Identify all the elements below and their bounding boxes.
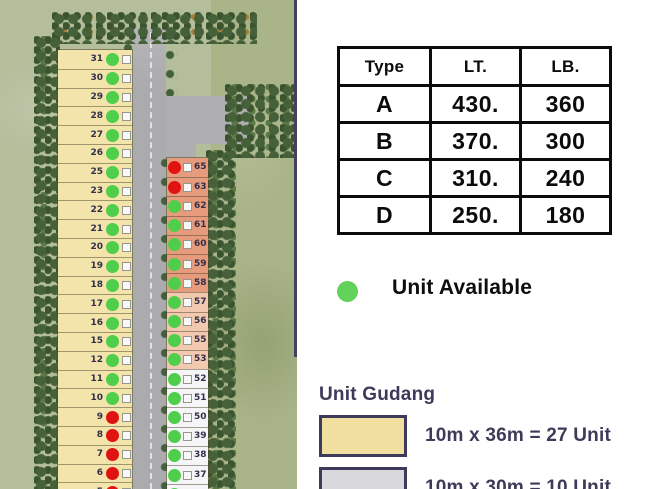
entrance-square: [183, 221, 192, 230]
unit-number: 28: [90, 112, 103, 121]
unit-row: 63: [167, 177, 208, 196]
status-dot-icon: [168, 200, 181, 213]
unit-number: 37: [194, 471, 207, 480]
status-dot-icon: [106, 53, 119, 66]
unit-row: 62: [167, 196, 208, 215]
unit-row: 7: [58, 445, 132, 464]
entrance-square: [122, 168, 131, 177]
unit-row: 5: [58, 482, 132, 489]
unit-number: 12: [90, 356, 103, 365]
cell-lb: 360: [521, 86, 611, 123]
unit-row: 51: [167, 388, 208, 407]
available-legend-label: Unit Available: [392, 276, 532, 300]
cell-type: B: [339, 123, 431, 160]
unit-number: 10: [90, 394, 103, 403]
unit-number: 23: [90, 187, 103, 196]
legend-item-label: 10m x 36m = 27 Unit: [425, 425, 611, 447]
cell-type: D: [339, 197, 431, 234]
entrance-square: [122, 93, 131, 102]
unit-number: 58: [194, 279, 207, 288]
entrance-square: [122, 394, 131, 403]
entrance-square: [183, 298, 192, 307]
unit-number: 60: [194, 240, 207, 249]
unit-row: 25: [58, 163, 132, 182]
table-header-row: Type LT. LB.: [339, 48, 611, 86]
legend-item: 10m x 30m = 10 Unit: [319, 467, 639, 489]
unit-number: 65: [194, 163, 207, 172]
status-dot-icon: [106, 110, 119, 123]
entrance-square: [122, 225, 131, 234]
tree-cluster-junction: [225, 84, 295, 158]
unit-number: 53: [194, 355, 207, 364]
unit-row: 31: [58, 50, 132, 69]
unit-row: 50: [167, 407, 208, 426]
status-dot-icon: [106, 411, 119, 424]
unit-number: 50: [194, 413, 207, 422]
cell-lb: 300: [521, 123, 611, 160]
status-dot-icon: [168, 315, 181, 328]
status-dot-icon: [106, 185, 119, 198]
unit-gudang-items: 10m x 36m = 27 Unit 10m x 30m = 10 Unit: [319, 415, 639, 489]
status-dot-icon: [106, 129, 119, 142]
unit-row: 27: [58, 125, 132, 144]
entrance-square: [183, 375, 192, 384]
unit-number: 38: [194, 451, 207, 460]
unit-number: 31: [90, 55, 103, 64]
entrance-square: [183, 471, 192, 480]
unit-row: 61: [167, 216, 208, 235]
status-dot-icon: [106, 317, 119, 330]
entrance-square: [122, 469, 131, 478]
unit-row: 37: [167, 465, 208, 484]
legend-item-label: 10m x 30m = 10 Unit: [425, 477, 611, 489]
status-dot-icon: [168, 334, 181, 347]
unit-number: 57: [194, 298, 207, 307]
entrance-square: [122, 337, 131, 346]
unit-row: 30: [58, 69, 132, 88]
unit-row: 20: [58, 238, 132, 257]
unit-row: 60: [167, 235, 208, 254]
status-dot-icon: [106, 147, 119, 160]
status-dot-icon: [168, 219, 181, 232]
entrance-square: [183, 336, 192, 345]
entrance-square: [122, 431, 131, 440]
status-dot-icon: [106, 467, 119, 480]
unit-number: 51: [194, 394, 207, 403]
tree-column-middle-right: [206, 150, 236, 489]
unit-number: 16: [90, 319, 103, 328]
status-dot-icon: [106, 166, 119, 179]
left-units-column: 31 30 29 28 27 26 25 23 22 21: [57, 49, 133, 489]
unit-row: 65: [167, 158, 208, 177]
unit-number: 63: [194, 183, 207, 192]
entrance-square: [122, 112, 131, 121]
unit-row: 8: [58, 426, 132, 445]
entrance-square: [122, 356, 131, 365]
status-dot-icon: [168, 373, 181, 386]
col-header-lb: LB.: [521, 48, 611, 86]
status-dot-icon: [106, 335, 119, 348]
unit-row: 39: [167, 427, 208, 446]
status-dot-icon: [168, 181, 181, 194]
entrance-square: [122, 243, 131, 252]
status-dot-icon: [106, 72, 119, 85]
entrance-square: [183, 355, 192, 364]
unit-row: [167, 484, 208, 489]
entrance-square: [122, 187, 131, 196]
unit-number: 59: [194, 260, 207, 269]
unit-row: 19: [58, 257, 132, 276]
status-dot-icon: [168, 161, 181, 174]
unit-number: 25: [90, 168, 103, 177]
entrance-square: [183, 240, 192, 249]
entrance-square: [122, 131, 131, 140]
unit-number: 19: [90, 262, 103, 271]
status-dot-icon: [106, 279, 119, 292]
site-plan-map: 31 30 29 28 27 26 25 23 22 21: [0, 0, 297, 489]
unit-row: 56: [167, 312, 208, 331]
unit-row: 16: [58, 313, 132, 332]
unit-number: 26: [90, 149, 103, 158]
table-row: B 370. 300: [339, 123, 611, 160]
status-dot-icon: [106, 448, 119, 461]
status-dot-icon: [168, 430, 181, 443]
entrance-square: [183, 394, 192, 403]
status-dot-icon: [168, 258, 181, 271]
status-dot-icon: [106, 241, 119, 254]
cell-lt: 430.: [431, 86, 521, 123]
status-dot-icon: [106, 260, 119, 273]
unit-row: 57: [167, 292, 208, 311]
unit-number: 29: [90, 93, 103, 102]
entrance-square: [183, 432, 192, 441]
entrance-square: [122, 206, 131, 215]
map-right-border: [294, 0, 297, 357]
cell-type: C: [339, 160, 431, 197]
status-dot-icon: [168, 238, 181, 251]
cell-lb: 180: [521, 197, 611, 234]
unit-number: 61: [194, 221, 207, 230]
cell-lb: 240: [521, 160, 611, 197]
unit-number: 7: [97, 450, 103, 459]
entrance-square: [122, 55, 131, 64]
unit-row: 55: [167, 331, 208, 350]
status-dot-icon: [168, 449, 181, 462]
status-dot-icon: [106, 204, 119, 217]
entrance-square: [122, 300, 131, 309]
table-row: A 430. 360: [339, 86, 611, 123]
unit-row: 23: [58, 182, 132, 201]
col-header-type: Type: [339, 48, 431, 86]
cell-lt: 370.: [431, 123, 521, 160]
cell-type: A: [339, 86, 431, 123]
unit-row: 22: [58, 200, 132, 219]
status-dot-icon: [106, 91, 119, 104]
unit-row: 10: [58, 388, 132, 407]
unit-row: 38: [167, 446, 208, 465]
unit-row: 26: [58, 144, 132, 163]
type-spec-table: Type LT. LB. A 430. 360 B 370. 300 C 310…: [337, 46, 612, 235]
unit-number: 20: [90, 243, 103, 252]
entrance-square: [183, 163, 192, 172]
unit-row: 53: [167, 350, 208, 369]
unit-number: 27: [90, 131, 103, 140]
unit-row: 21: [58, 219, 132, 238]
status-dot-icon: [106, 354, 119, 367]
unit-number: 8: [97, 431, 103, 440]
tree-strip-road-right-top: [165, 30, 177, 96]
unit-gudang-legend: Unit Gudang 10m x 36m = 27 Unit 10m x 30…: [319, 384, 639, 489]
unit-number: 17: [90, 300, 103, 309]
unit-row: 6: [58, 464, 132, 483]
legend-swatch: [319, 415, 407, 457]
unit-row: 18: [58, 276, 132, 295]
road-junction-stub: [166, 144, 196, 158]
status-dot-icon: [106, 373, 119, 386]
unit-number: 62: [194, 202, 207, 211]
entrance-square: [122, 450, 131, 459]
entrance-square: [183, 279, 192, 288]
status-dot-icon: [168, 411, 181, 424]
status-dot-icon: [106, 392, 119, 405]
entrance-square: [183, 183, 192, 192]
entrance-square: [183, 413, 192, 422]
entrance-square: [122, 149, 131, 158]
unit-row: 15: [58, 332, 132, 351]
status-dot-icon: [106, 429, 119, 442]
legend-item: 10m x 36m = 27 Unit: [319, 415, 639, 457]
status-dot-icon: [106, 298, 119, 311]
entrance-square: [122, 319, 131, 328]
status-dot-icon: [168, 392, 181, 405]
unit-row: 58: [167, 273, 208, 292]
unit-number: 39: [194, 432, 207, 441]
status-dot-icon: [168, 353, 181, 366]
status-dot-icon: [168, 469, 181, 482]
unit-number: 56: [194, 317, 207, 326]
legend-swatch: [319, 467, 407, 489]
unit-number: 15: [90, 337, 103, 346]
unit-number: 22: [90, 206, 103, 215]
cell-lt: 310.: [431, 160, 521, 197]
entrance-square: [122, 262, 131, 271]
entrance-square: [183, 451, 192, 460]
unit-number: 6: [97, 469, 103, 478]
entrance-square: [122, 74, 131, 83]
unit-row: 28: [58, 106, 132, 125]
table-row: D 250. 180: [339, 197, 611, 234]
entrance-square: [183, 260, 192, 269]
unit-number: 9: [97, 413, 103, 422]
unit-row: 12: [58, 351, 132, 370]
unit-number: 11: [90, 375, 103, 384]
unit-number: 21: [90, 225, 103, 234]
unit-row: 11: [58, 370, 132, 389]
unit-number: 52: [194, 375, 207, 384]
status-dot-icon: [106, 223, 119, 236]
unit-number: 30: [90, 74, 103, 83]
entrance-square: [183, 202, 192, 211]
tree-row-top: [52, 12, 257, 44]
col-header-lt: LT.: [431, 48, 521, 86]
entrance-square: [122, 413, 131, 422]
road-centerline: [150, 32, 152, 489]
entrance-square: [122, 375, 131, 384]
unit-row: 52: [167, 369, 208, 388]
unit-row: 59: [167, 254, 208, 273]
site-plan-flyer: 31 30 29 28 27 26 25 23 22 21: [0, 0, 652, 489]
unit-gudang-title: Unit Gudang: [319, 384, 639, 406]
middle-units-column: 65 63 62 61 60 59 58 57 56 55: [166, 157, 209, 489]
entrance-square: [183, 317, 192, 326]
available-dot-icon: [337, 281, 358, 302]
unit-number: 18: [90, 281, 103, 290]
status-dot-icon: [168, 296, 181, 309]
cell-lt: 250.: [431, 197, 521, 234]
status-dot-icon: [168, 277, 181, 290]
unit-row: 29: [58, 88, 132, 107]
unit-number: 55: [194, 336, 207, 345]
unit-row: 9: [58, 407, 132, 426]
entrance-square: [122, 281, 131, 290]
table-row: C 310. 240: [339, 160, 611, 197]
unit-row: 17: [58, 294, 132, 313]
